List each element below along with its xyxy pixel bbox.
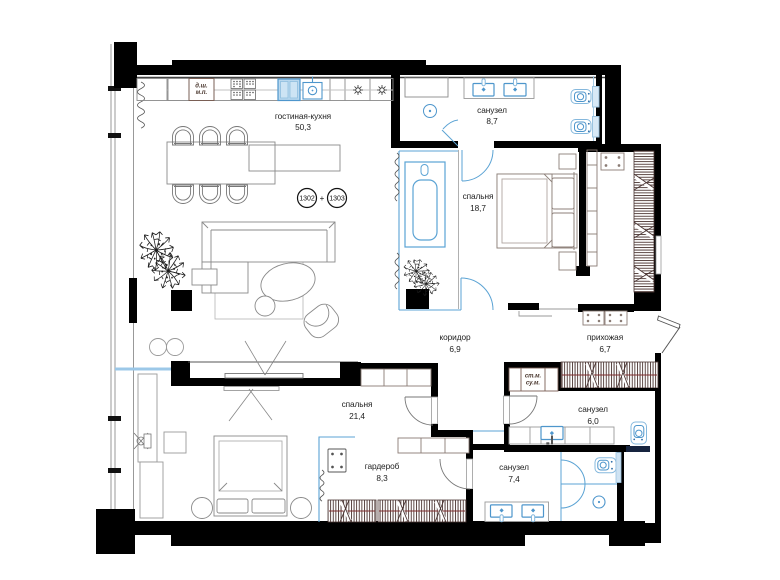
svg-text:7,4: 7,4	[508, 474, 520, 484]
svg-text:санузел: санузел	[578, 404, 608, 414]
svg-text:18,7: 18,7	[470, 203, 486, 213]
svg-text:1302: 1302	[299, 196, 315, 203]
svg-text:8,3: 8,3	[376, 473, 388, 483]
svg-text:прихожая: прихожая	[587, 332, 623, 342]
svg-text:су.м.: су.м.	[526, 381, 540, 387]
svg-text:санузел: санузел	[477, 105, 507, 115]
svg-text:спальня: спальня	[342, 399, 373, 409]
svg-text:50,3: 50,3	[295, 122, 311, 132]
svg-text:+: +	[320, 194, 325, 203]
svg-text:6,0: 6,0	[587, 416, 599, 426]
svg-text:м.п.: м.п.	[196, 90, 208, 96]
svg-text:21,4: 21,4	[349, 411, 365, 421]
svg-text:6,7: 6,7	[599, 344, 611, 354]
svg-text:8,7: 8,7	[486, 116, 498, 126]
svg-text:ст.м.: ст.м.	[525, 374, 542, 380]
svg-text:гостиная-кухня: гостиная-кухня	[275, 111, 331, 121]
svg-text:спальня: спальня	[463, 191, 494, 201]
svg-text:гардероб: гардероб	[365, 461, 400, 471]
svg-text:коридор: коридор	[440, 332, 471, 342]
svg-text:санузел: санузел	[499, 462, 529, 472]
svg-text:1303: 1303	[329, 196, 345, 203]
svg-text:6,9: 6,9	[449, 344, 461, 354]
svg-text:д.ш.: д.ш.	[195, 84, 208, 90]
